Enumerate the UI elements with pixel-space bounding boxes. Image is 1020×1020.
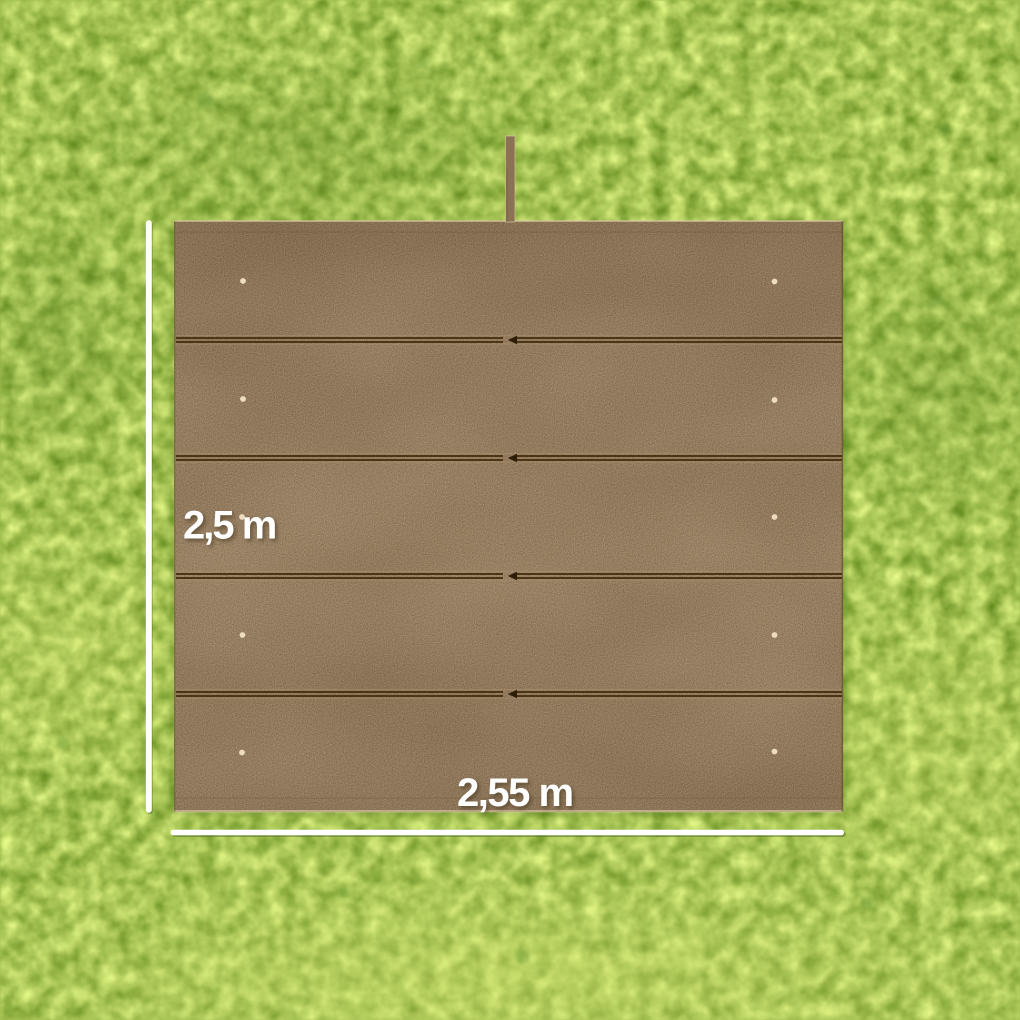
svg-text:2,5 m: 2,5 m: [183, 504, 276, 548]
svg-text:2,55 m: 2,55 m: [457, 771, 573, 815]
